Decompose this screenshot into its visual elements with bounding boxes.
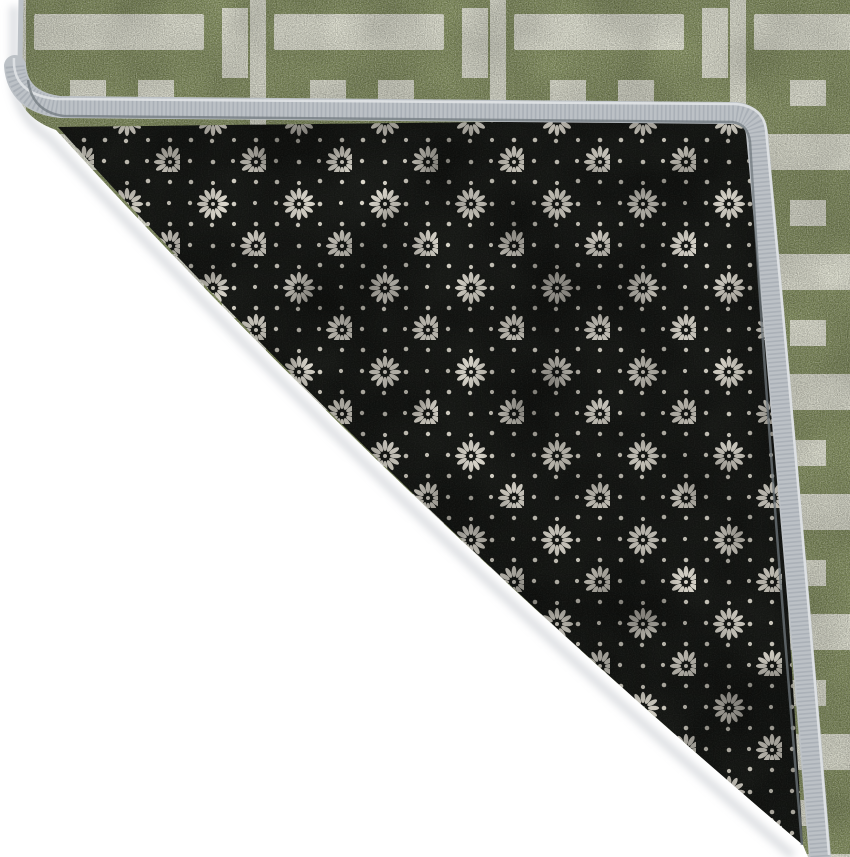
- binding-left-edge: [20, 0, 21, 62]
- rug-product-photo: [0, 0, 850, 857]
- rug-photo-canvas: [0, 0, 850, 857]
